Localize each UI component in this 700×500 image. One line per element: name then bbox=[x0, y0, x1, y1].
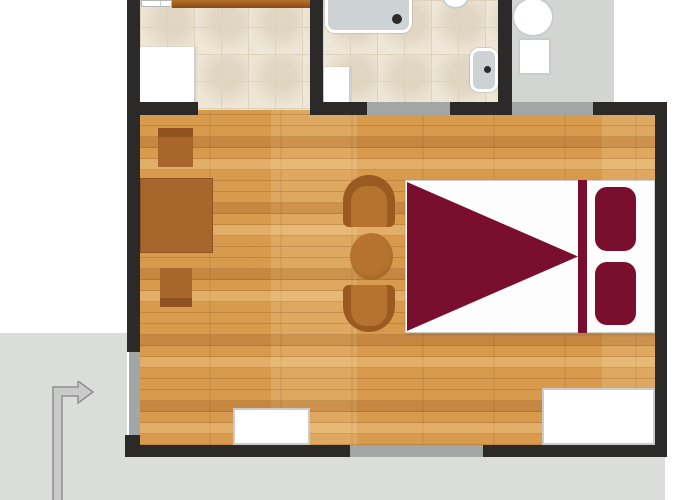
kitchen-counter bbox=[172, 0, 310, 8]
wall-top-right-a bbox=[450, 102, 512, 115]
pillow-bottom bbox=[595, 262, 636, 325]
entrance-arrow-icon bbox=[40, 381, 100, 500]
desk-chair-bottom bbox=[160, 268, 192, 307]
outside-area-bottom bbox=[127, 457, 665, 500]
window-left bbox=[129, 352, 140, 435]
wall-top-kitchen bbox=[127, 102, 198, 115]
kitchen-sink-unit bbox=[141, 0, 172, 7]
desk-chair-top bbox=[158, 128, 193, 167]
cabinet-bottom-right bbox=[542, 388, 655, 445]
pillow-top bbox=[595, 187, 636, 251]
window-bottom bbox=[350, 445, 483, 457]
wall-bathroom-right bbox=[498, 0, 512, 115]
desk bbox=[140, 178, 213, 253]
armchair-top-seat bbox=[351, 186, 387, 227]
kitchen-door-leaf bbox=[137, 47, 196, 102]
floor-plan bbox=[0, 0, 700, 500]
coffee-table bbox=[350, 233, 393, 280]
bed-headboard-stripe bbox=[578, 180, 587, 333]
wall-left bbox=[127, 0, 140, 352]
wall-right bbox=[655, 102, 667, 457]
armchair-bottom-seat bbox=[351, 285, 387, 326]
shower-drain bbox=[392, 14, 402, 24]
wall-basin-drain bbox=[484, 66, 491, 73]
bench-bottom-wall bbox=[233, 408, 310, 445]
wall-kitchen-bathroom bbox=[310, 0, 323, 102]
wall-bottom-right bbox=[483, 445, 667, 457]
wall-bottom-left bbox=[125, 445, 350, 457]
wall-top-middle bbox=[310, 102, 367, 115]
bathroom-door-leaf bbox=[324, 67, 351, 102]
terrace-door-threshold bbox=[512, 102, 593, 115]
bathroom-door-threshold bbox=[367, 102, 450, 115]
terrace-chair bbox=[518, 38, 551, 75]
